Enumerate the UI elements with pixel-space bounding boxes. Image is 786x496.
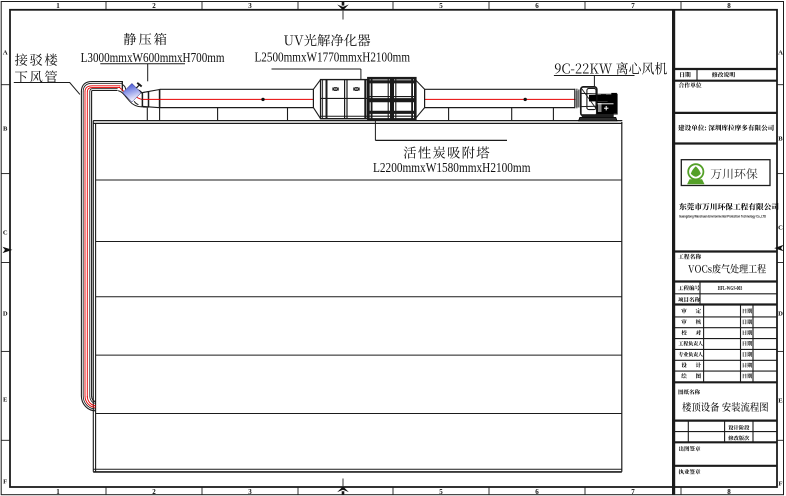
svg-text:2: 2 (152, 2, 156, 10)
svg-text:L3000mmxW600mmxH700mm: L3000mmxW600mmxH700mm (81, 50, 225, 65)
svg-text:7: 7 (631, 2, 635, 10)
svg-text:L2200mmxW1580mmxH2100mm: L2200mmxW1580mmxH2100mm (373, 160, 531, 175)
svg-text:3: 3 (248, 488, 252, 496)
svg-text:Guangdong Wanchuan Environment: Guangdong Wanchuan Environmental Protect… (679, 215, 767, 219)
svg-text:C: C (3, 229, 8, 236)
svg-text:A: A (778, 49, 783, 56)
svg-text:E: E (778, 397, 783, 404)
svg-text:3: 3 (248, 2, 252, 10)
svg-text:5: 5 (439, 488, 443, 496)
svg-text:B: B (3, 125, 8, 132)
svg-text:B: B (778, 135, 783, 142)
svg-text:A: A (3, 49, 8, 56)
svg-text:E: E (3, 396, 8, 403)
svg-text:F: F (3, 478, 7, 485)
svg-text:8: 8 (727, 2, 731, 10)
svg-text:L2500mmxW1770mmxH2100mm: L2500mmxW1770mmxH2100mm (255, 49, 411, 64)
svg-text:8: 8 (727, 488, 731, 496)
svg-text:6: 6 (535, 2, 539, 10)
svg-text:1: 1 (56, 2, 60, 10)
svg-text:5: 5 (439, 2, 443, 10)
svg-text:D: D (3, 310, 8, 317)
svg-text:7: 7 (631, 488, 635, 496)
svg-text:F: F (778, 480, 782, 487)
svg-text:6: 6 (535, 488, 539, 496)
svg-text:1: 1 (56, 488, 60, 496)
svg-text:2: 2 (152, 488, 156, 496)
svg-text:C: C (778, 224, 783, 231)
svg-text:D: D (778, 310, 783, 317)
svg-text:HFL-WGS-003: HFL-WGS-003 (718, 285, 743, 292)
